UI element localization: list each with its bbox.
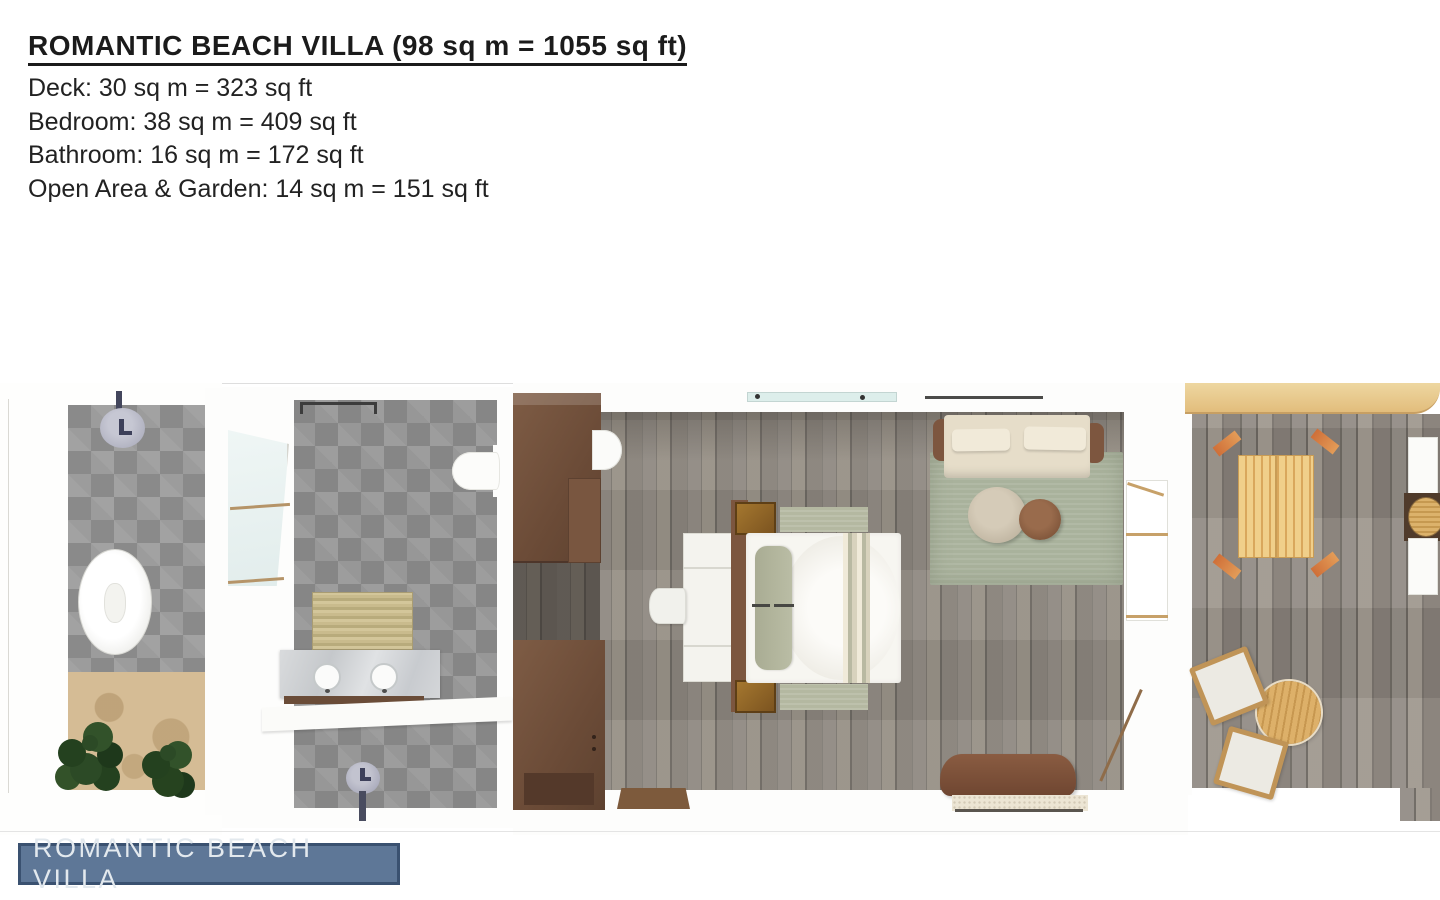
brochure-page: ROMANTIC BEACH VILLA (98 sq m = 1055 sq … — [0, 0, 1440, 900]
sofa-pillow — [952, 428, 1010, 451]
window-marker-line — [925, 396, 1043, 399]
wardrobe-shelf-box — [568, 478, 601, 563]
wardrobe-open-cubby — [524, 773, 594, 805]
bedroom-window — [747, 392, 897, 402]
door-opening-marker — [300, 402, 377, 414]
bed-foot-throw — [843, 533, 870, 683]
vanity-marble-counter — [280, 650, 440, 698]
spec-bedroom: Bedroom: 38 sq m = 409 sq ft — [28, 106, 489, 140]
mat-edge-line — [955, 809, 1083, 812]
vanity-sink — [370, 663, 398, 691]
vanity-sink — [313, 663, 341, 691]
desk-divider — [683, 645, 734, 647]
bedside-stool — [735, 502, 776, 535]
desk-chair — [649, 588, 686, 624]
bedside-runner-rug — [780, 507, 868, 532]
round-side-table — [1019, 499, 1061, 540]
woven-bath-mat — [312, 592, 413, 650]
villa-name-badge: ROMANTIC BEACH VILLA — [18, 843, 400, 885]
window-end-marker — [755, 394, 760, 399]
bedside-runner-rug — [780, 684, 868, 710]
toilet — [452, 452, 500, 490]
bath-filler-pipe — [359, 791, 366, 821]
bed-accessory — [752, 604, 770, 607]
deck-floor-extension — [1400, 788, 1440, 821]
bed-end-bench — [940, 754, 1076, 796]
spec-bathroom: Bathroom: 16 sq m = 172 sq ft — [28, 139, 489, 173]
sink-drain — [382, 689, 387, 693]
spec-open-area-garden: Open Area & Garden: 14 sq m = 151 sq ft — [28, 173, 489, 207]
entry-door-mat — [617, 788, 690, 809]
door-panel-rail — [1126, 533, 1168, 536]
sofa-arm — [1088, 423, 1104, 463]
spec-deck: Deck: 30 sq m = 323 sq ft — [28, 72, 489, 106]
door-panel-rail — [1126, 615, 1168, 618]
bed-accessory — [774, 604, 794, 607]
sliding-door-panels — [1126, 480, 1168, 621]
bath-filler-spout — [360, 777, 371, 781]
villa-name-label: ROMANTIC BEACH VILLA — [33, 833, 397, 895]
bedside-stool — [735, 680, 776, 713]
plan-bottom-edge — [0, 831, 1440, 832]
round-ottoman — [968, 487, 1026, 543]
shower-fixture — [119, 431, 132, 435]
deck-wall-gap — [1178, 411, 1192, 795]
wardrobe-gap-floor — [513, 563, 600, 640]
window-end-marker — [860, 395, 865, 400]
bathtub-detail — [104, 583, 126, 623]
desk-divider — [683, 567, 734, 569]
bed-duvet — [782, 536, 900, 680]
garden-sand-patch — [68, 672, 215, 790]
plant-cluster — [160, 745, 176, 761]
writing-desk — [683, 533, 734, 682]
deck-side-panel — [1408, 538, 1438, 595]
deck-dining-table — [1257, 681, 1321, 744]
wardrobe-top-face — [513, 393, 601, 405]
deck-roof-beam — [1185, 383, 1440, 414]
floor-plan — [0, 383, 1440, 835]
plant-cluster — [82, 735, 98, 751]
rattan-side-table — [1408, 497, 1440, 537]
page-title: ROMANTIC BEACH VILLA (98 sq m = 1055 sq … — [28, 30, 687, 66]
wardrobe-handle — [592, 747, 596, 751]
daybed-seam — [1275, 456, 1277, 557]
spec-list: Deck: 30 sq m = 323 sq ft Bedroom: 38 sq… — [28, 72, 489, 206]
bed-bolster-pillow — [755, 546, 792, 670]
outdoor-wall-line — [8, 399, 9, 793]
wardrobe-handle — [592, 735, 596, 739]
deck-side-panel — [1408, 437, 1438, 494]
sink-drain — [325, 689, 330, 693]
sofa-pillow — [1024, 426, 1086, 450]
